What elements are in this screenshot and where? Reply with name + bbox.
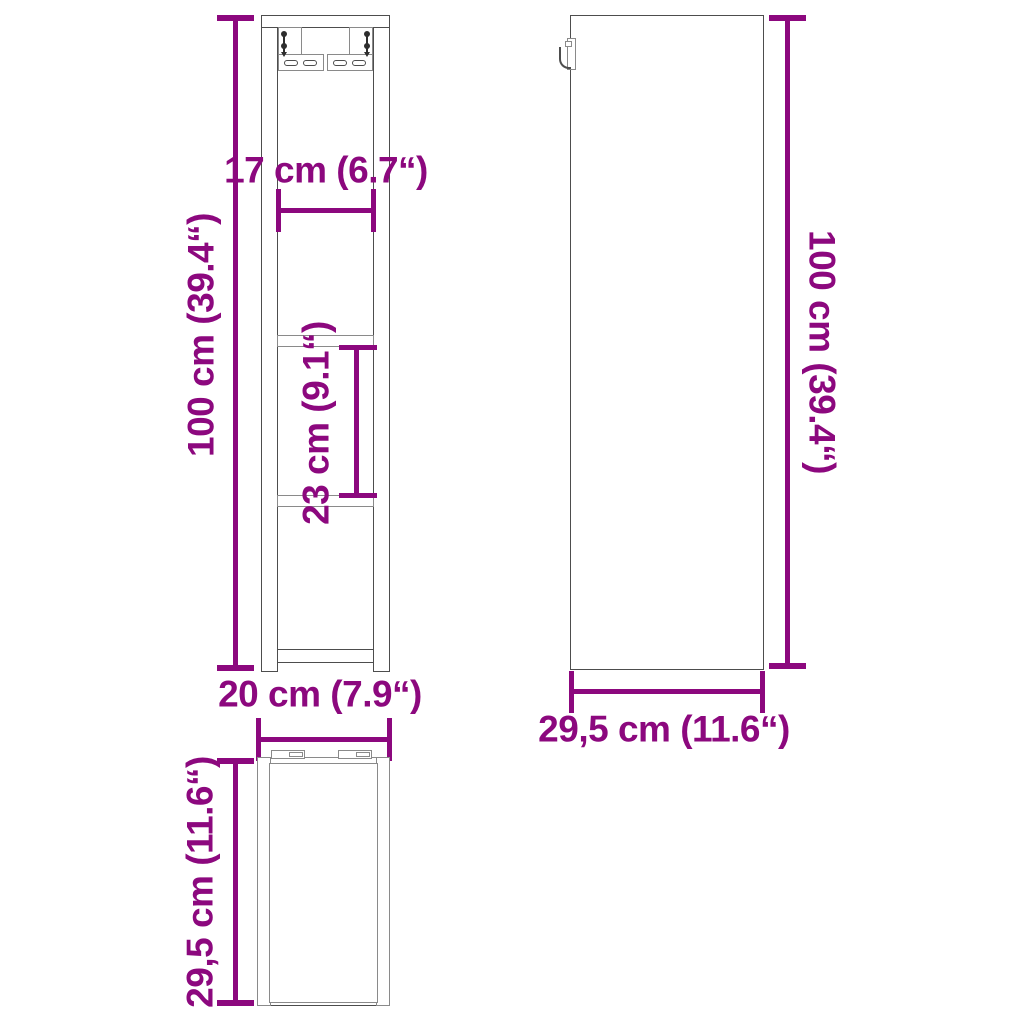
- dim-tick: [217, 15, 254, 21]
- dim-line: [785, 17, 790, 667]
- top-bracket-tab-right-slot: [356, 752, 370, 757]
- dim-tick: [760, 671, 765, 713]
- dim-line: [354, 348, 359, 496]
- top-bracket-tab-left-slot: [289, 752, 303, 757]
- front-left-panel: [261, 15, 278, 672]
- dim-tick: [769, 15, 806, 21]
- hook-curve: [559, 47, 571, 69]
- dim-tick: [256, 718, 261, 761]
- dimension-diagram: 100 cm (39.4“) 17 cm (6.7“) 23 cm (9.1“)…: [0, 0, 1024, 1024]
- bracket-screw-tip: [281, 52, 287, 57]
- dim-label-front-width: 20 cm (7.9“): [218, 676, 422, 713]
- top-right-strip: [376, 757, 390, 1006]
- dim-tick: [339, 493, 377, 498]
- bracket-screw-stem: [366, 34, 368, 53]
- dim-line: [233, 17, 238, 669]
- dim-label-front-shelf-spacing: 23 cm (9.1“): [298, 321, 335, 525]
- bracket-slot: [303, 60, 317, 66]
- front-right-panel: [373, 15, 390, 672]
- dim-label-side-height: 100 cm (39.4“): [804, 230, 841, 474]
- dim-tick: [569, 671, 574, 713]
- dim-tick: [339, 345, 377, 350]
- dim-line: [571, 689, 763, 694]
- dim-tick: [217, 1000, 254, 1006]
- dim-line: [233, 761, 238, 1004]
- side-panel: [570, 15, 764, 670]
- front-bottom-panel: [277, 649, 374, 663]
- dim-tick: [217, 665, 254, 671]
- dim-label-front-inner-width: 17 cm (6.7“): [224, 152, 428, 189]
- dim-tick: [276, 189, 281, 232]
- dim-tick: [769, 663, 806, 669]
- dim-tick: [371, 189, 376, 232]
- bracket-slot: [352, 60, 366, 66]
- bracket-slot: [284, 60, 298, 66]
- bracket-screw-tip: [364, 52, 370, 57]
- dim-label-front-height: 100 cm (39.4“): [183, 213, 220, 457]
- dim-label-top-depth: 29,5 cm (11.6“): [182, 756, 219, 1008]
- bracket-screw-stem: [283, 34, 285, 53]
- dim-label-side-depth: 29,5 cm (11.6“): [538, 711, 790, 748]
- dim-tick: [387, 718, 392, 761]
- top-panel-face: [269, 763, 378, 1003]
- dim-line: [278, 208, 374, 213]
- dim-tick: [217, 758, 254, 764]
- bracket-slot: [333, 60, 347, 66]
- dim-line: [258, 737, 390, 742]
